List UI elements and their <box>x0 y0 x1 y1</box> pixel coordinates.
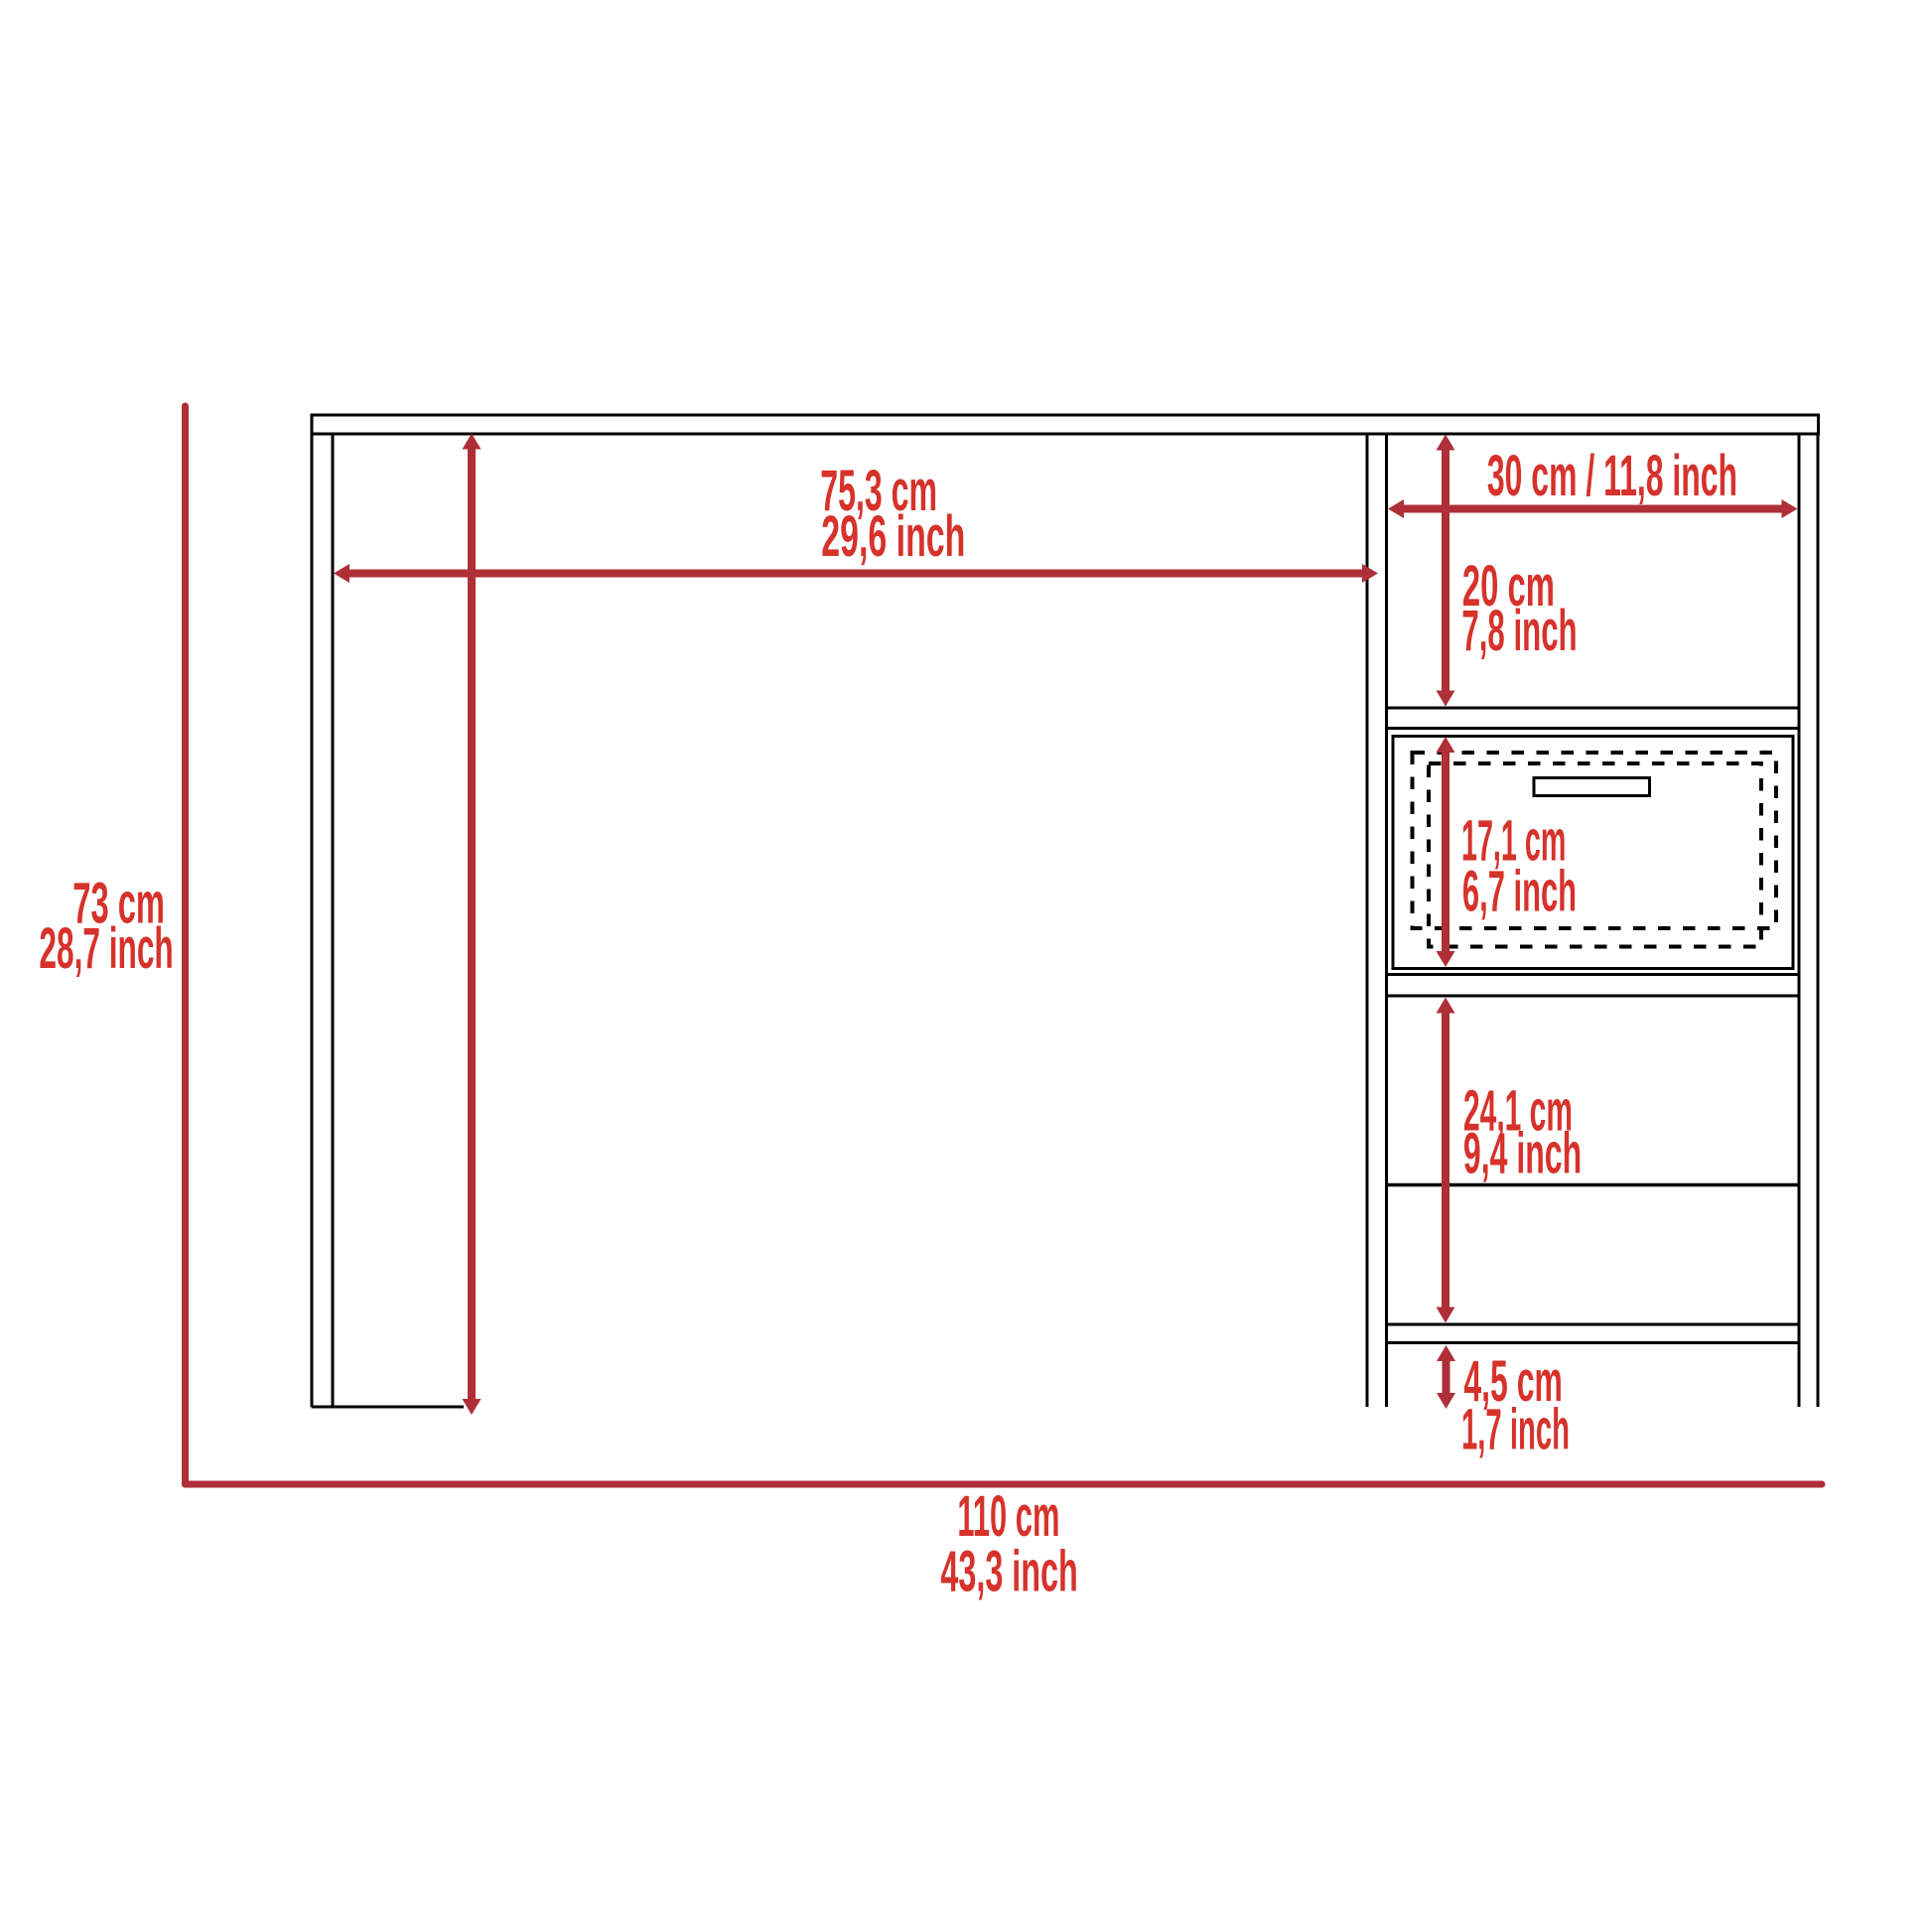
svg-text:30 cm / 11,8 inch: 30 cm / 11,8 inch <box>1487 444 1737 507</box>
svg-text:7,8 inch: 7,8 inch <box>1461 599 1577 663</box>
svg-text:9,4 inch: 9,4 inch <box>1463 1122 1582 1185</box>
svg-text:29,6 inch: 29,6 inch <box>821 505 965 570</box>
svg-text:1,7 inch: 1,7 inch <box>1461 1396 1570 1461</box>
svg-text:28,7 inch: 28,7 inch <box>39 916 173 981</box>
svg-text:43,3 inch: 43,3 inch <box>940 1538 1077 1602</box>
svg-text:6,7 inch: 6,7 inch <box>1462 859 1577 923</box>
